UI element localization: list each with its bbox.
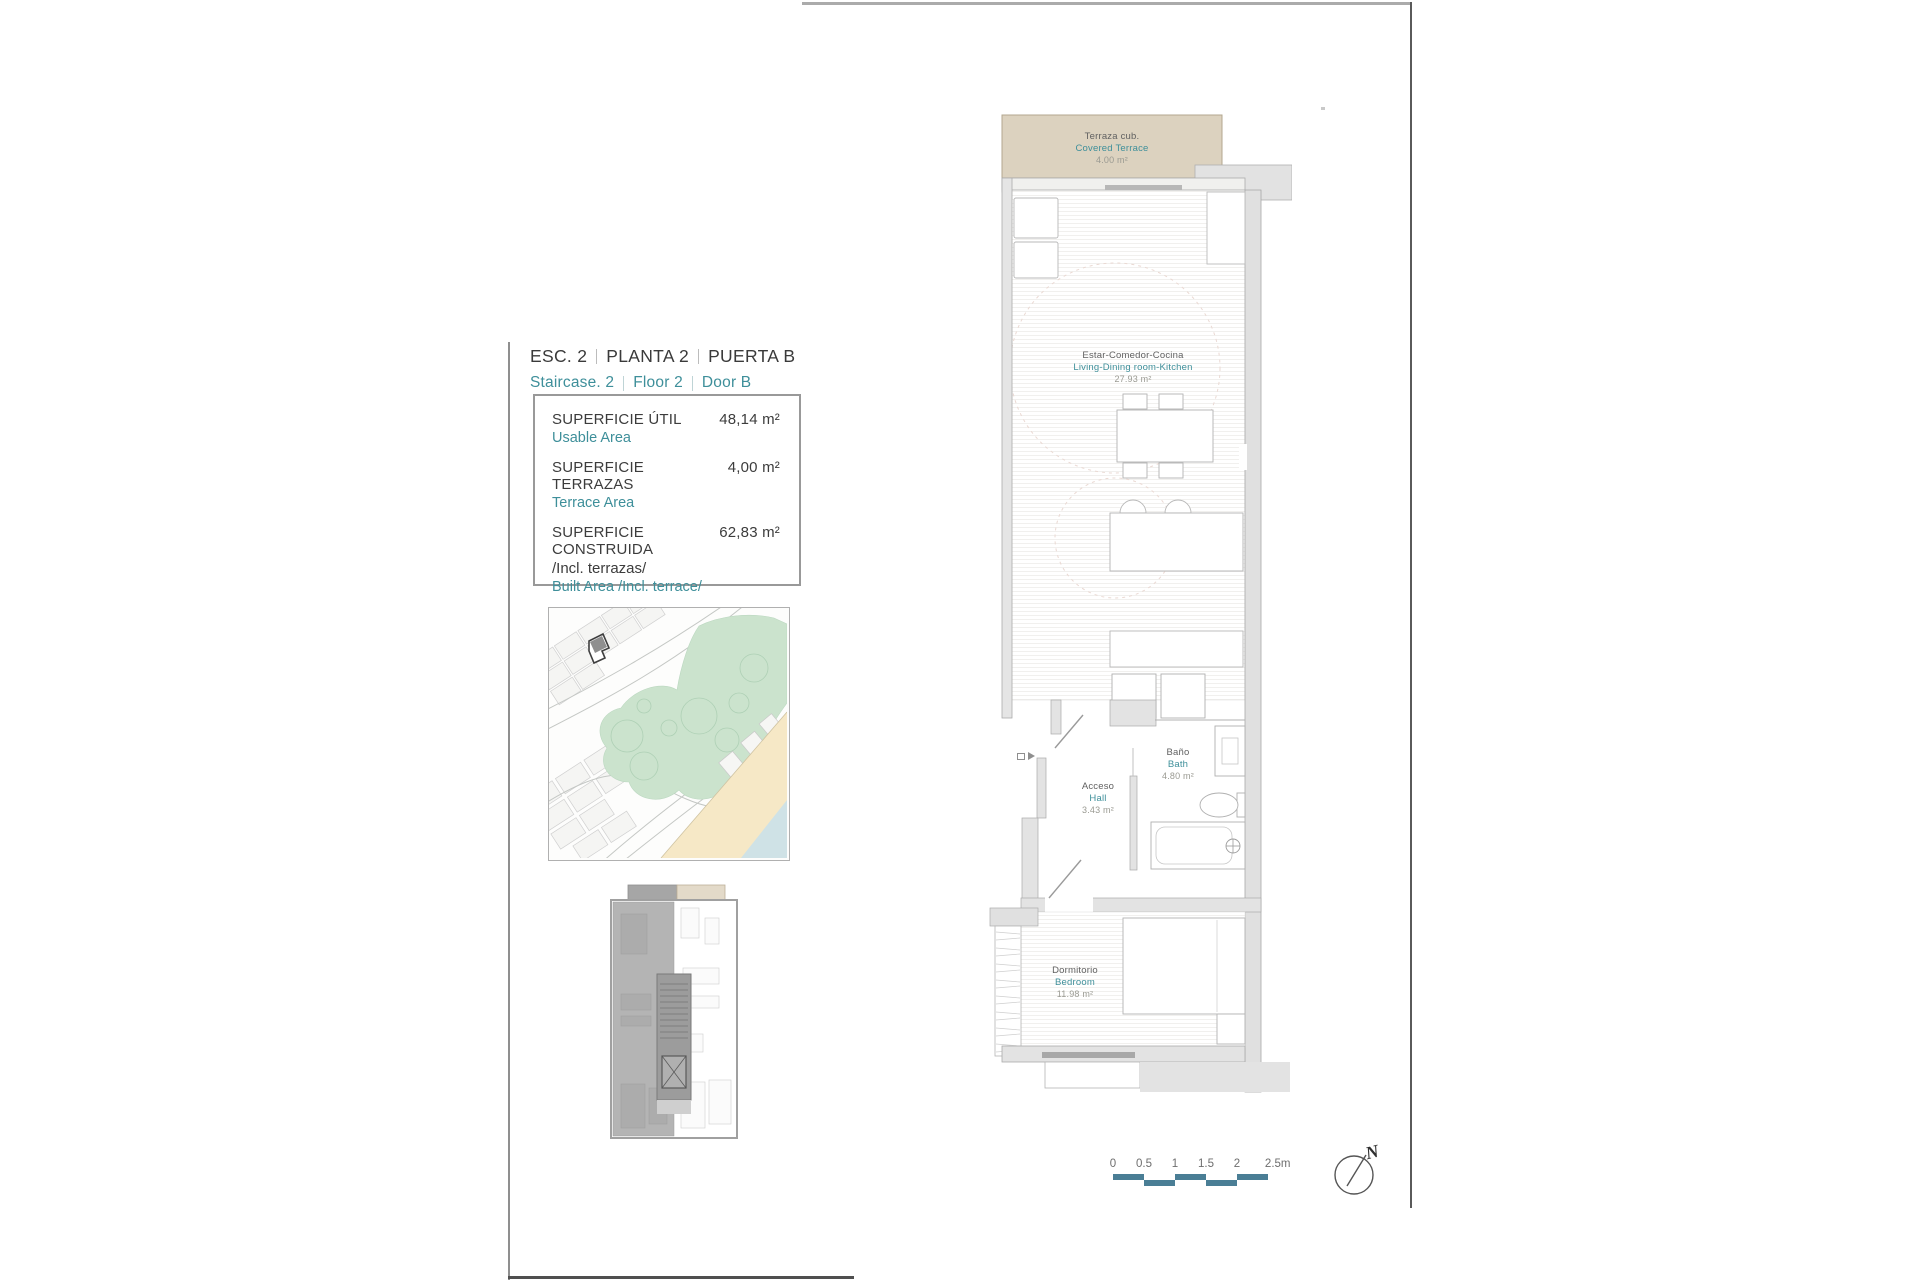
area-label-es: SUPERFICIE ÚTIL: [552, 411, 682, 428]
balcony-wall-top: [990, 908, 1038, 926]
label-covered-terrace: Terraza cub. Covered Terrace 4.00 m²: [1032, 131, 1192, 166]
area-value: 62,83 m²: [713, 524, 780, 558]
wall-right-recess: [1239, 444, 1247, 470]
bedroom-door-opening: [1045, 897, 1093, 913]
area-label-es: SUPERFICIE CONSTRUIDA: [552, 524, 713, 558]
scale-bar: 0 0.5 1 1.5 2 2.5m: [1113, 1158, 1298, 1192]
print-speck: [1321, 107, 1325, 110]
bathtub: [1151, 822, 1245, 869]
area-label-en: Built Area /Incl. terrace/: [552, 579, 780, 595]
scale-tick: 0: [1110, 1158, 1116, 1170]
label-hall: Acceso Hall 3.43 m²: [1038, 781, 1158, 816]
scale-tick: 1: [1172, 1158, 1178, 1170]
page-border-top: [802, 2, 1411, 5]
site-location-map: [548, 607, 790, 861]
key-plan-drawing: [601, 884, 747, 1142]
toilet: [1200, 793, 1245, 817]
terrace-door-sill: [1105, 185, 1182, 190]
bed: [1123, 918, 1245, 1014]
apartment-plan: [985, 108, 1292, 1100]
title-staircase: Staircase. 2: [530, 374, 623, 392]
title-door: Door B: [693, 374, 760, 392]
keyplan-terrace-left: [628, 885, 677, 900]
title-line-es: ESC. 2 PLANTA 2 PUERTA B: [530, 346, 830, 367]
label-living-room: Estar-Comedor-Cocina Living-Dining room-…: [1043, 350, 1223, 385]
floor-plan-sheet: ESC. 2 PLANTA 2 PUERTA B Staircase. 2 Fl…: [0, 0, 1920, 1280]
keyplan-terrace-right: [677, 885, 725, 900]
bedroom-window-sill: [1042, 1052, 1135, 1058]
wall-left: [1002, 178, 1012, 718]
area-label-es: SUPERFICIE TERRAZAS: [552, 459, 722, 493]
page-border-left: [508, 342, 510, 1280]
area-row-terrace: SUPERFICIE TERRAZAS 4,00 m² Terrace Area: [552, 459, 780, 511]
title-floor: Floor 2: [624, 374, 692, 392]
title-puerta: PUERTA B: [699, 346, 804, 367]
page-border-bottom: [508, 1276, 854, 1279]
scale-tick: 1.5: [1198, 1158, 1214, 1170]
keyplan-elevator: [662, 1056, 686, 1088]
wall-hall-top: [1110, 700, 1156, 726]
area-row-usable: SUPERFICIE ÚTIL 48,14 m² Usable Area: [552, 411, 780, 446]
exterior-apron: [1140, 1062, 1290, 1092]
nightstand: [1217, 1014, 1245, 1044]
bedroom-door-leaf: [1049, 860, 1081, 898]
sofa: [1014, 198, 1058, 278]
north-arrow-icon: N: [1328, 1144, 1392, 1204]
scale-tick: 0.5: [1136, 1158, 1152, 1170]
title-block: ESC. 2 PLANTA 2 PUERTA B Staircase. 2 Fl…: [530, 346, 830, 392]
area-value: 4,00 m²: [722, 459, 780, 493]
entrance-arrow-icon: [1017, 752, 1035, 760]
scale-tick: 2: [1234, 1158, 1240, 1170]
area-label-es2: /Incl. terrazas/: [552, 560, 780, 577]
area-summary-box: SUPERFICIE ÚTIL 48,14 m² Usable Area SUP…: [533, 394, 801, 586]
label-bedroom: Dormitorio Bedroom 11.98 m²: [1015, 965, 1135, 1000]
entry-jamb: [1051, 700, 1061, 734]
site-map-drawing: [549, 608, 787, 858]
wall-hall-left-lower: [1022, 818, 1038, 910]
area-row-built: SUPERFICIE CONSTRUIDA 62,83 m² /Incl. te…: [552, 524, 780, 595]
wall-right: [1245, 190, 1261, 1092]
porch: [1045, 1062, 1140, 1088]
title-line-en: Staircase. 2 Floor 2 Door B: [530, 374, 830, 392]
label-bath: Baño Bath 4.80 m²: [1118, 747, 1238, 782]
building-key-plan: [601, 884, 747, 1142]
area-label-en: Usable Area: [552, 430, 780, 446]
area-label-en: Terrace Area: [552, 495, 780, 511]
keyplan-landing: [657, 1100, 691, 1114]
tv-unit: [1207, 192, 1245, 264]
page-border-right: [1410, 2, 1412, 1208]
title-esc: ESC. 2: [530, 346, 596, 367]
title-planta: PLANTA 2: [597, 346, 698, 367]
scale-tick: 2.5m: [1265, 1158, 1291, 1170]
kitchen-counter: [1110, 631, 1243, 667]
area-value: 48,14 m²: [713, 411, 780, 428]
apartment-plan-drawing: [985, 108, 1292, 1100]
